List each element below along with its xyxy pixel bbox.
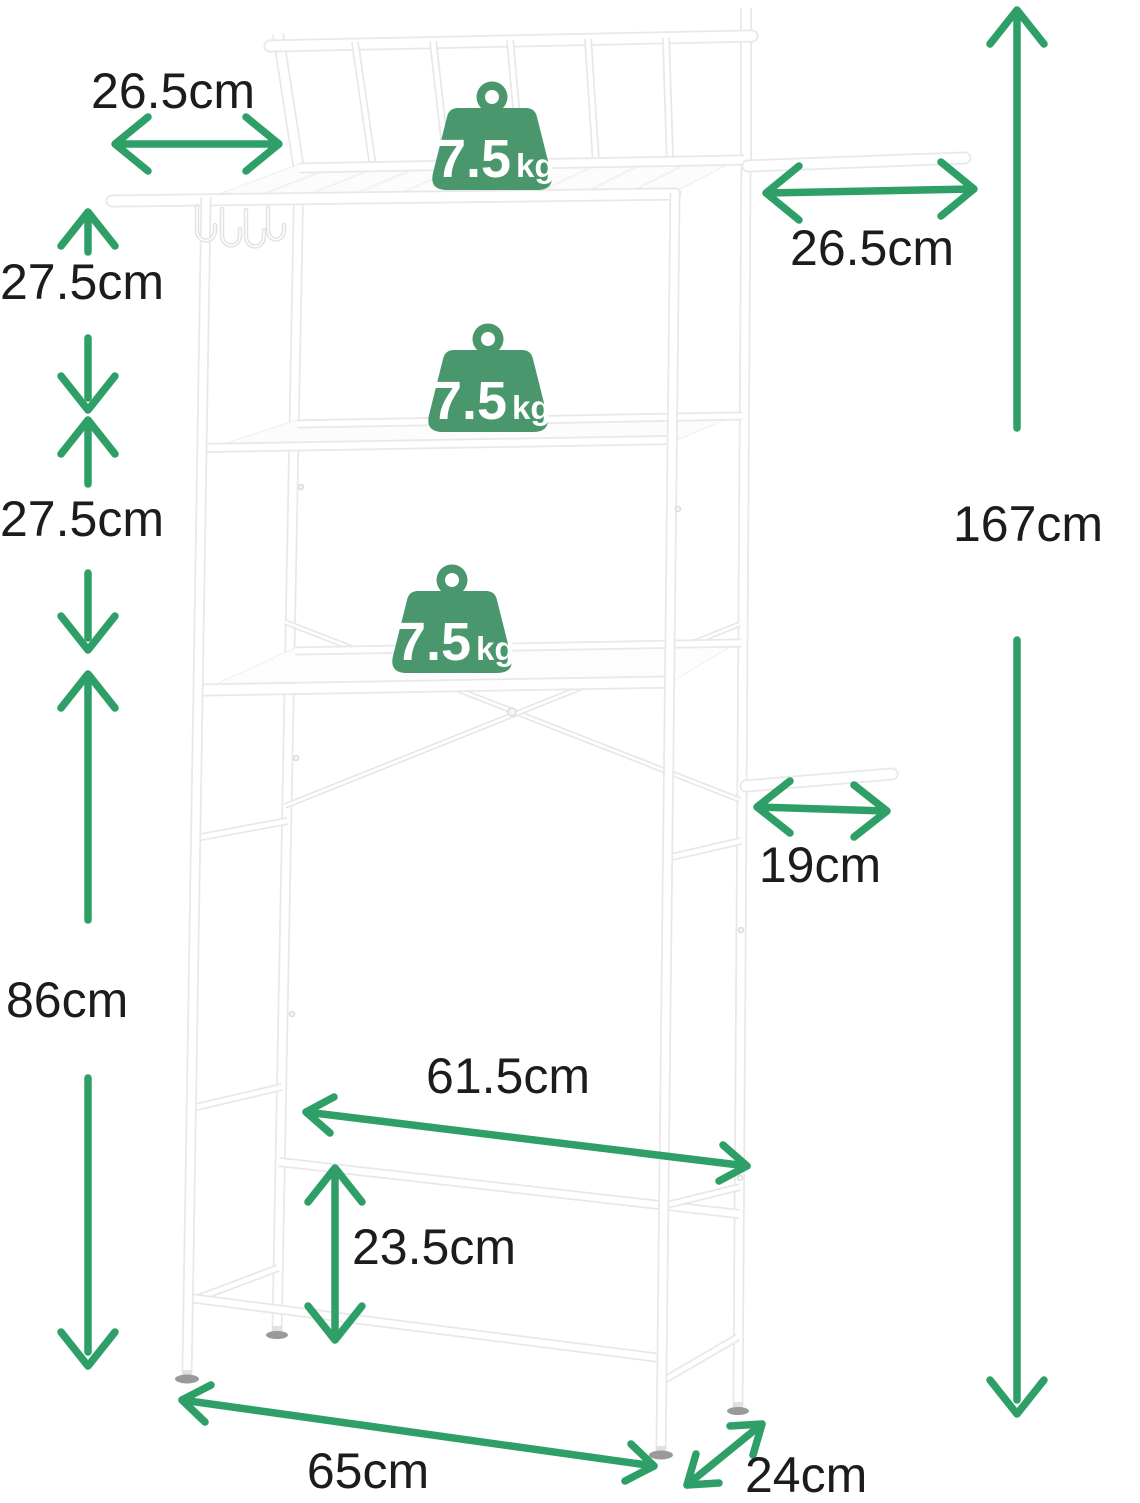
weight-capacity-icon bbox=[428, 324, 550, 433]
foot bbox=[175, 1370, 199, 1384]
page-root: { "diagram": { "kind": "over-toilet-rack… bbox=[0, 0, 1140, 1500]
foot bbox=[727, 1402, 749, 1415]
dim-arrow-total-height bbox=[990, 10, 1044, 1414]
label-left-bar-length: 26.5cm bbox=[91, 64, 255, 119]
label-depth: 24cm bbox=[745, 1448, 867, 1503]
rack-mid-bars bbox=[112, 158, 965, 1358]
s-hook bbox=[222, 209, 240, 246]
weight-capacity-icon bbox=[392, 565, 514, 674]
label-upper-shelf-gap: 27.5cm bbox=[0, 255, 164, 310]
label-under-clearance: 86cm bbox=[6, 973, 128, 1028]
dim-arrow-right-bar bbox=[766, 162, 974, 220]
label-middle-shelf-gap: 27.5cm bbox=[0, 492, 164, 547]
label-total-height: 167cm bbox=[953, 497, 1103, 552]
label-bottom-bar-height: 23.5cm bbox=[352, 1220, 516, 1275]
diagram-stage: 7.5 kg bbox=[0, 0, 1140, 1500]
s-hook bbox=[246, 210, 264, 247]
label-right-bar-length: 26.5cm bbox=[790, 221, 954, 276]
dim-arrow-left-bar bbox=[115, 117, 279, 171]
foot bbox=[266, 1326, 288, 1339]
rack-diagram-svg: 7.5 kg bbox=[0, 0, 1140, 1500]
label-outer-width: 65cm bbox=[307, 1444, 429, 1499]
dim-arrow-upper-gap bbox=[61, 212, 115, 410]
label-towel-bar-length: 19cm bbox=[759, 838, 881, 893]
weight-capacity-icon bbox=[432, 82, 554, 191]
s-hook bbox=[268, 208, 284, 239]
dim-arrow-towel-bar bbox=[757, 781, 887, 837]
foot bbox=[649, 1446, 673, 1460]
label-inner-width: 61.5cm bbox=[426, 1049, 590, 1104]
